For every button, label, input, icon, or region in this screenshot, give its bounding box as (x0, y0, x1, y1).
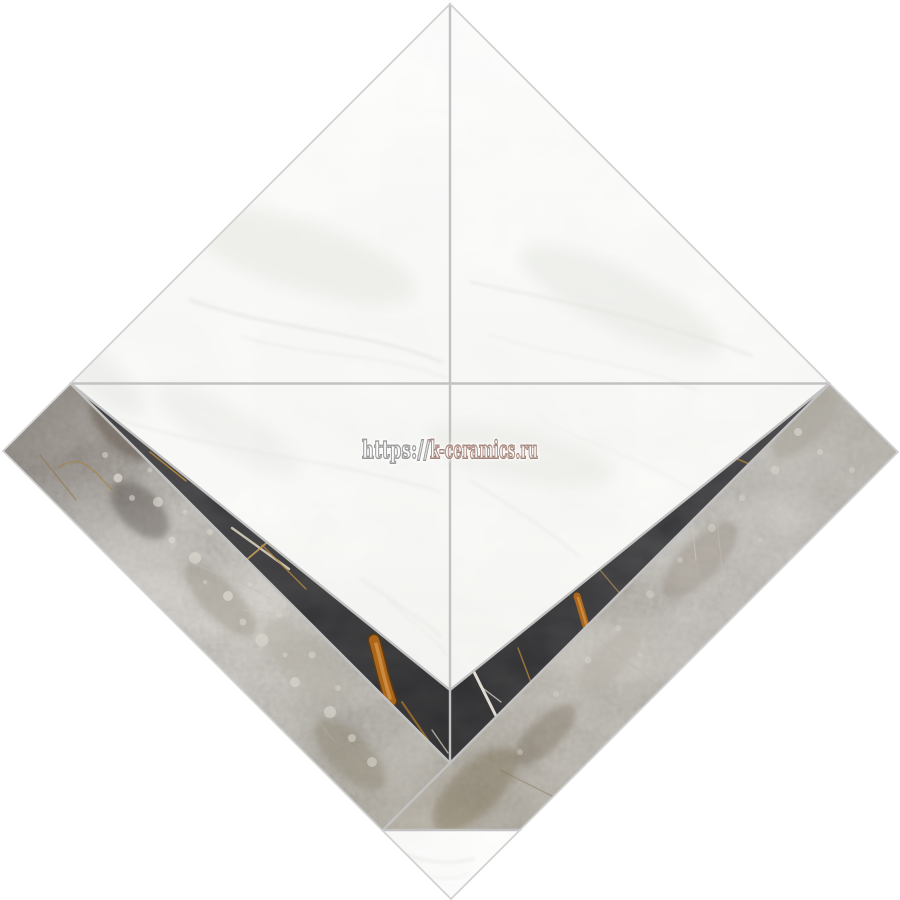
watermark-text: https://k-ceramics.ru (362, 435, 538, 464)
mosaic-tile-image: https://k-ceramics.ru https://k-ceramics… (0, 0, 900, 900)
watermark-domain: k-ceramics.ru (430, 435, 538, 464)
watermark: https://k-ceramics.ru https://k-ceramics… (362, 435, 538, 464)
watermark-prefix: https:// (362, 435, 430, 464)
white-marble-bottom-tip (375, 825, 530, 900)
product-image-stage: https://k-ceramics.ru https://k-ceramics… (0, 0, 900, 900)
